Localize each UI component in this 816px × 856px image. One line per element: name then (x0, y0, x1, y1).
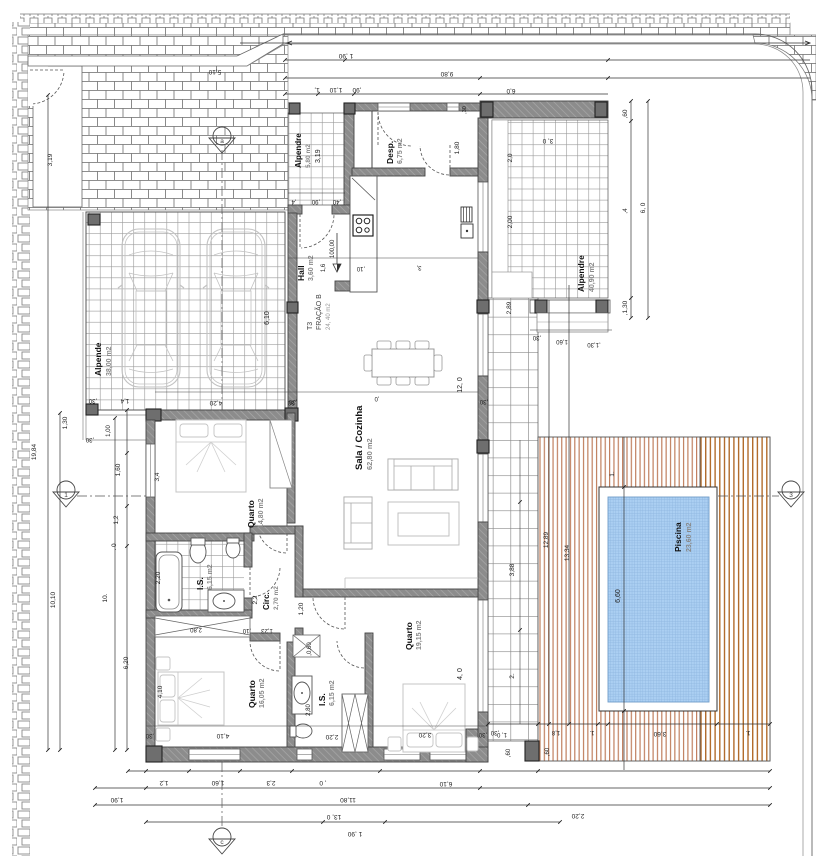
svg-text:2,20: 2,20 (155, 571, 162, 584)
svg-text:4, 0: 4, 0 (457, 668, 464, 680)
svg-text:,30: ,30 (478, 731, 487, 737)
svg-text:13, 0: 13, 0 (326, 813, 341, 820)
svg-text:1,20: 1,20 (298, 602, 305, 615)
svg-text:2,20: 2,20 (325, 733, 338, 740)
svg-text:,30: ,30 (479, 398, 488, 404)
svg-text:2,80: 2,80 (306, 704, 312, 716)
svg-text:12, 0: 12, 0 (457, 377, 464, 393)
svg-text:5,10: 5,10 (208, 68, 221, 75)
svg-text:1,80: 1,80 (454, 141, 461, 154)
svg-text:1,4: 1,4 (120, 397, 129, 403)
svg-text:16,05 m2: 16,05 m2 (259, 678, 266, 708)
svg-text:3,20: 3,20 (418, 731, 431, 738)
svg-text:I.S.: I.S. (317, 693, 327, 706)
svg-text:6,60: 6,60 (615, 589, 622, 603)
svg-text:4,10: 4,10 (216, 732, 229, 739)
svg-text:2,0: 2,0 (507, 153, 514, 162)
svg-text:1,2: 1,2 (159, 779, 168, 786)
svg-text:1 ,90: 1 ,90 (347, 830, 362, 837)
svg-text:2,70 m2: 2,70 m2 (273, 586, 280, 610)
svg-text:100,00: 100,00 (330, 239, 336, 258)
svg-text:1,60: 1,60 (115, 463, 122, 476)
svg-text:2,20: 2,20 (571, 812, 584, 819)
svg-text:9,80: 9,80 (440, 70, 453, 77)
svg-text:,1,30: ,1,30 (587, 341, 601, 347)
svg-text:,0,60: ,0,60 (307, 642, 313, 656)
svg-text:2,3: 2,3 (266, 779, 275, 786)
svg-text:,4: ,4 (291, 198, 297, 204)
svg-text:3: 3 (789, 492, 793, 499)
svg-text:,30: ,30 (145, 732, 154, 738)
svg-text:Alpende: Alpende (93, 342, 103, 376)
svg-text:2,2: 2,2 (252, 595, 259, 604)
svg-text:Alpendre: Alpendre (294, 133, 303, 168)
svg-text:,60: ,60 (506, 748, 512, 757)
svg-text:6,20: 6,20 (123, 656, 130, 669)
svg-text:1,: 1, (314, 86, 320, 93)
svg-text:38,00 m2: 38,00 m2 (106, 346, 113, 376)
svg-text:,1,30: ,1,30 (622, 300, 629, 315)
svg-text:6,15 m2: 6,15 m2 (329, 680, 336, 706)
svg-text:Hall: Hall (296, 265, 306, 281)
svg-text:,30: ,30 (287, 399, 296, 405)
svg-text:Sala / Cozinha: Sala / Cozinha (354, 405, 365, 470)
svg-text:,40: ,40 (332, 198, 341, 204)
svg-text:Quarto: Quarto (246, 500, 256, 528)
svg-text:3,60: 3,60 (653, 730, 666, 737)
svg-text:,30: ,30 (88, 397, 97, 403)
svg-text:Circ.: Circ. (262, 592, 271, 610)
svg-text:2,80: 2,80 (190, 626, 202, 632)
svg-text:FRAÇÃO B: FRAÇÃO B (314, 294, 323, 330)
svg-text:1: 1 (64, 492, 68, 499)
svg-text:19,15 m2: 19,15 m2 (416, 620, 423, 650)
svg-text:2,00: 2,00 (507, 215, 514, 228)
svg-text:2,89: 2,89 (506, 301, 513, 314)
svg-text:1,60: 1,60 (556, 338, 568, 344)
svg-text:13,34: 13,34 (564, 544, 571, 561)
svg-text:3,19: 3,19 (315, 149, 322, 163)
svg-text:,10: ,10 (242, 627, 251, 633)
svg-text:14,80 m2: 14,80 m2 (258, 498, 265, 528)
svg-text:6,15 m2: 6,15 m2 (207, 564, 214, 590)
svg-text:1 ,90: 1 ,90 (338, 52, 353, 59)
svg-text:,30: ,30 (490, 729, 499, 735)
svg-text:1,6: 1,6 (321, 263, 327, 272)
svg-text:. 0: . 0 (111, 543, 118, 551)
svg-text:3,60 m2: 3,60 m2 (308, 255, 315, 281)
svg-text:6,10: 6,10 (264, 311, 271, 325)
svg-text:,0: ,0 (374, 395, 380, 401)
svg-text:10.: 10. (102, 593, 109, 602)
svg-text:,90: ,90 (352, 86, 361, 93)
svg-text:,60: ,60 (622, 109, 629, 118)
svg-text:6, 0: 6, 0 (640, 202, 647, 213)
svg-text:1,8: 1,8 (551, 729, 560, 735)
svg-text:,30: ,30 (532, 334, 541, 340)
svg-text:3,88: 3,88 (509, 563, 516, 576)
svg-text:,4: ,4 (622, 208, 629, 214)
svg-text:6,10: 6,10 (439, 780, 452, 787)
svg-text:1,30: 1,30 (62, 416, 69, 429)
svg-text:1,2: 1,2 (113, 515, 120, 524)
svg-text:I.S.: I.S. (195, 577, 205, 590)
svg-text:10,10: 10,10 (50, 591, 57, 608)
svg-text:2.: 2. (509, 673, 516, 679)
svg-text:62,80 m2: 62,80 m2 (365, 438, 374, 470)
svg-text:Quarto: Quarto (247, 680, 257, 708)
svg-text:4,20: 4,20 (209, 399, 222, 406)
svg-text:11,80: 11,80 (340, 796, 356, 803)
svg-text:3,: 3, (416, 264, 421, 270)
svg-text:Piscina: Piscina (673, 522, 683, 552)
svg-text:23,60 m2: 23,60 m2 (686, 522, 693, 552)
svg-text:1,10: 1,10 (329, 86, 342, 93)
svg-text:1.: 1. (745, 729, 750, 735)
svg-text:40,90 m2: 40,90 m2 (589, 262, 596, 292)
svg-text:5,80 m2: 5,80 m2 (305, 144, 312, 168)
svg-text:6,0: 6,0 (506, 87, 515, 94)
svg-text:,60: ,60 (545, 747, 551, 756)
svg-text:1,00: 1,00 (106, 425, 112, 437)
svg-text:a: a (220, 138, 224, 145)
svg-text:1.: 1. (609, 471, 616, 477)
svg-text:Quarto: Quarto (404, 622, 414, 650)
svg-text:3,4: 3,4 (154, 472, 161, 481)
svg-text:,90: ,90 (311, 198, 320, 204)
svg-text:Alpendre: Alpendre (576, 255, 586, 292)
svg-text:,10: ,10 (356, 265, 365, 271)
svg-text:1,60: 1,60 (211, 779, 224, 786)
svg-text:1,23: 1,23 (261, 627, 273, 633)
svg-text:T3: T3 (307, 322, 314, 330)
svg-text:3, 0: 3, 0 (542, 137, 553, 144)
svg-text:1,90: 1,90 (110, 796, 123, 803)
svg-text:19,84: 19,84 (31, 443, 38, 460)
svg-text:1.: 1. (589, 729, 594, 735)
svg-text:,30: ,30 (462, 106, 468, 114)
svg-text:, 0: , 0 (319, 779, 327, 786)
svg-text:,30: ,30 (85, 436, 94, 442)
svg-text:4,10: 4,10 (157, 685, 164, 698)
svg-text:6,75 m2: 6,75 m2 (397, 138, 404, 164)
svg-text:Desp.: Desp. (385, 141, 395, 164)
svg-text:24, 40 m2: 24, 40 m2 (326, 303, 332, 330)
